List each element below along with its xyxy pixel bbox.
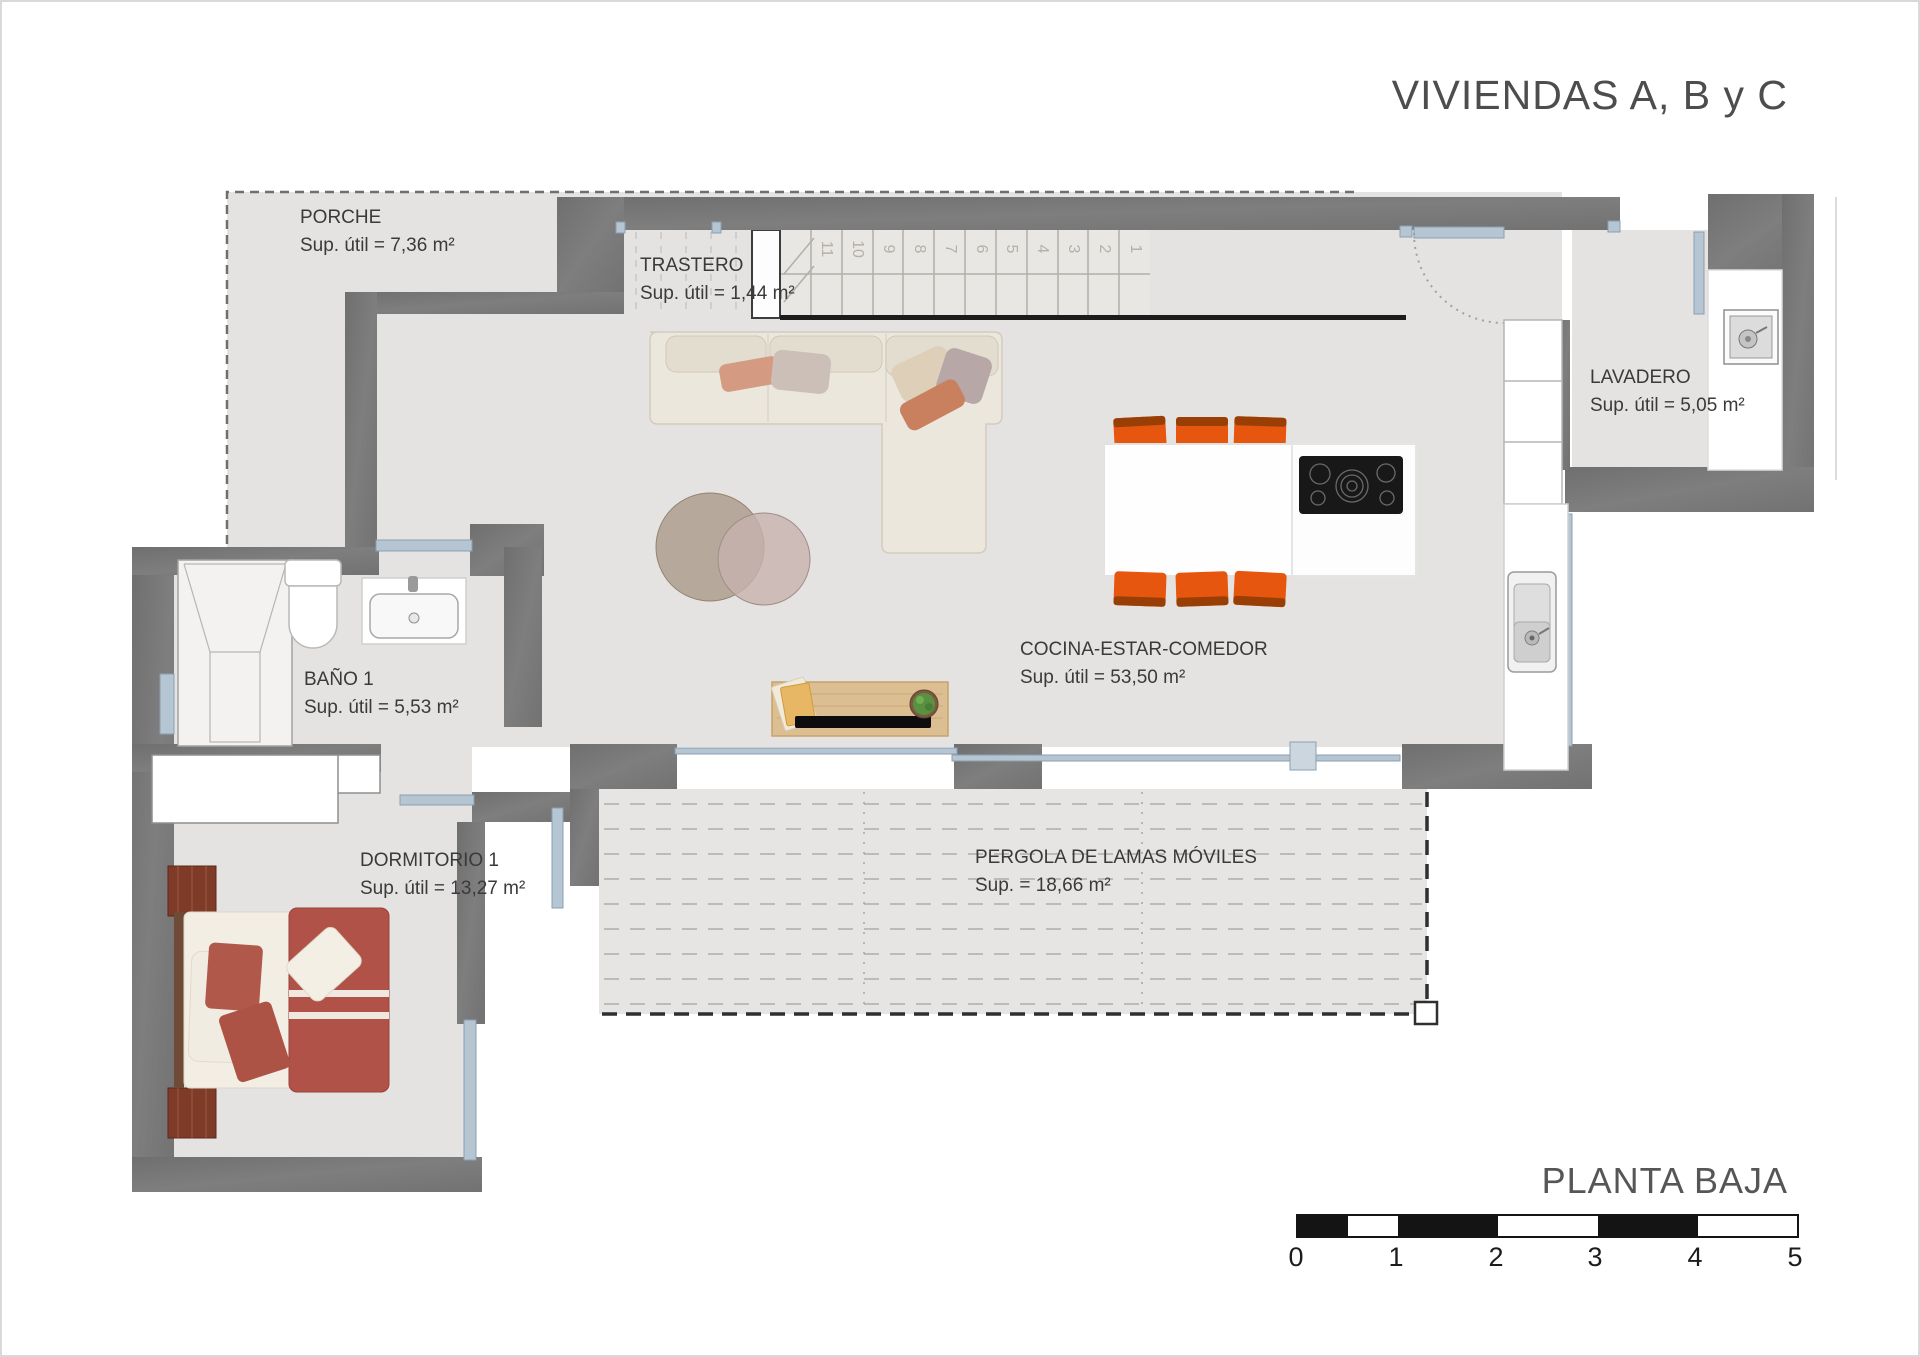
room-area: Sup. útil = 5,05 m² [1590,392,1745,420]
upper-floor-edge-line [780,315,1406,320]
room-label-cocina: COCINA-ESTAR-COMEDOR Sup. útil = 53,50 m… [1020,636,1268,691]
scale-tick-label: 2 [1488,1242,1503,1273]
stair-step-number: 7 [941,238,959,260]
sliding-glass-door-east [952,755,1400,761]
room-name: LAVADERO [1590,364,1745,392]
wall-porch-bottom [345,292,624,314]
storage-door-jamb-left [616,222,625,233]
sliding-glass-door-west [675,748,957,754]
stair-step-number: 5 [1002,238,1020,260]
wall-west-upper [345,292,377,557]
stair-step-number: 9 [879,238,897,260]
scale-segment [1598,1216,1698,1236]
toilet-icon [285,560,341,648]
room-name: TRASTERO [640,252,795,280]
wall-bedroom-bottom [132,1157,482,1192]
room-name: DORMITORIO 1 [360,847,525,875]
room-name: PERGOLA DE LAMAS MÓVILES [975,844,1257,872]
stair-step-number: 11 [817,238,835,260]
room-label-trastero: TRASTERO Sup. útil = 1,44 m² [640,252,795,307]
room-name: PORCHE [300,204,455,232]
door-bedroom [400,795,474,805]
tv-screen [795,716,931,728]
entry-door-leaf [1414,227,1504,238]
cooktop-icon [1299,456,1403,514]
tv-console [771,677,948,736]
room-area: Sup. útil = 5,53 m² [304,694,459,722]
scale-tick-label: 1 [1388,1242,1403,1273]
wall-laundry-bottom [1565,467,1814,512]
scale-tick-label: 5 [1787,1242,1802,1273]
room-label-dormitorio1: DORMITORIO 1 Sup. útil = 13,27 m² [360,847,525,902]
pergola-corner-post [1415,1002,1437,1024]
stair-step-number: 1 [1126,238,1144,260]
bed-pillow-red [205,942,263,1012]
laundry-opening-jamb [1608,221,1620,232]
scale-tick-label: 4 [1687,1242,1702,1273]
scale-segment [1398,1216,1498,1236]
room-area: Sup. útil = 13,27 m² [360,875,525,903]
wall-porch-pillar [557,197,624,294]
scale-segment [1698,1216,1797,1236]
room-label-porche: PORCHE Sup. útil = 7,36 m² [300,204,455,259]
room-label-lavadero: LAVADERO Sup. útil = 5,05 m² [1590,364,1745,419]
room-area: Sup. útil = 1,44 m² [640,280,795,308]
room-label-bano1: BAÑO 1 Sup. útil = 5,53 m² [304,666,459,721]
stair-step-number: 2 [1095,238,1113,260]
rug-round-small [718,513,810,605]
scale-tick-label: 3 [1587,1242,1602,1273]
stair-step-number: 8 [910,238,928,260]
floor-pergola [599,789,1427,1014]
wall-pergola-west-stub [570,789,599,886]
dining-table [1104,444,1294,576]
room-area: Sup. útil = 7,36 m² [300,232,455,260]
kitchen-cabinets [1504,320,1568,770]
laundry-door-leaf [1694,232,1704,314]
floor-plan-page: VIVIENDAS A, B y C PLANTA BAJA PORCHE Su… [0,0,1920,1357]
scale-tick-label: 0 [1288,1242,1303,1273]
scale-bar [1296,1214,1799,1238]
sliding-door-motor [1290,742,1316,770]
room-area: Sup. = 18,66 m² [975,872,1257,900]
room-label-pergola: PERGOLA DE LAMAS MÓVILES Sup. = 18,66 m² [975,844,1257,899]
kitchen-sink-icon [1508,572,1556,672]
storage-door-jamb-right [712,222,721,233]
stair-step-number: 4 [1033,238,1051,260]
room-area: Sup. útil = 53,50 m² [1020,664,1268,692]
stair-step-number: 6 [972,238,990,260]
laundry-sink-icon [1724,310,1778,364]
dining-chairs-bottom [1113,571,1286,608]
bathroom-sink-icon [362,576,466,644]
shower-icon [178,560,292,746]
room-name: COCINA-ESTAR-COMEDOR [1020,636,1268,664]
stair-step-number: 3 [1064,238,1082,260]
wall-south-west-block [570,744,677,789]
wall-bath-east [504,547,542,727]
wall-east [1782,194,1814,512]
scale-segment [1298,1216,1348,1236]
potted-plant-icon [910,690,938,718]
window-bath-west [160,674,174,734]
scale-labels: 0 1 2 3 4 5 [1296,1242,1795,1276]
room-name: BAÑO 1 [304,666,459,694]
bed [174,908,389,1092]
stair-step-number: 10 [848,238,866,260]
wall-south-mid-block [954,744,1042,789]
door-bath [376,540,472,551]
scale-segment [1348,1216,1398,1236]
scale-segment [1498,1216,1598,1236]
window-bedroom-east [464,1020,476,1160]
plan-name: PLANTA BAJA [1542,1160,1788,1202]
page-title: VIVIENDAS A, B y C [1392,72,1788,119]
floor-plan-canvas [2,2,1920,1357]
bed-headboard [174,912,184,1088]
entry-door-jamb [1400,226,1412,237]
window-hall-west [552,808,563,908]
stair-step-numbers: 1234567891011 [780,236,1150,270]
